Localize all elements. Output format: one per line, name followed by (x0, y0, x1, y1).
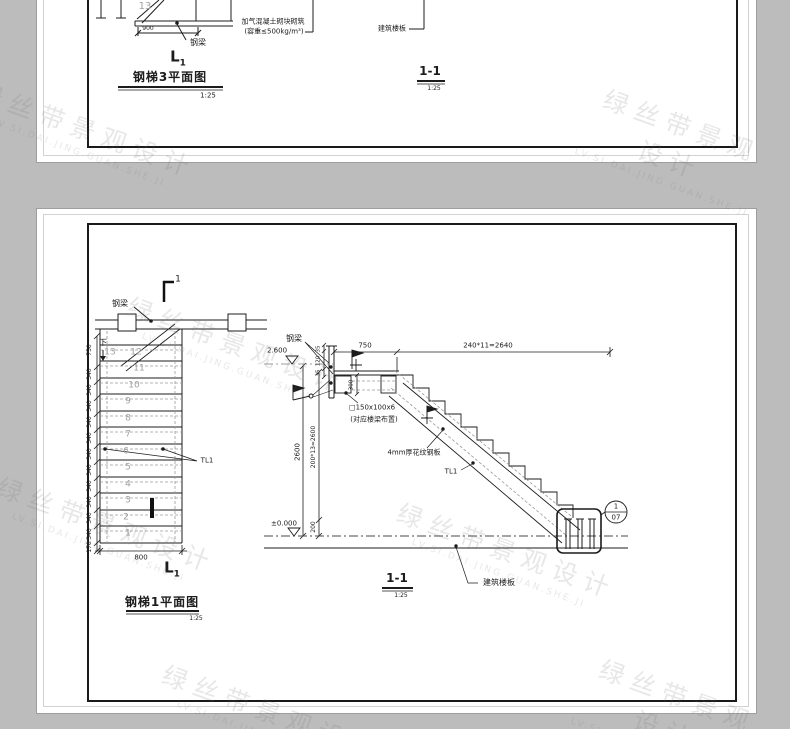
callout-detail-number: 1 (614, 504, 618, 511)
plan-dim-750: 750 (87, 344, 93, 355)
step-number: 6 (123, 448, 129, 457)
level-top: 2.600 (267, 348, 287, 355)
plate-spec: 4mm厚花纹钢板 (387, 450, 440, 457)
plan-dim-340: 340 (87, 400, 93, 411)
top-dim-900: 900 (142, 26, 153, 32)
plan-beam-mark: L1 (164, 561, 180, 580)
step-number: 13 (104, 349, 115, 358)
step-number: 11 (133, 365, 144, 374)
step-number: 9 (125, 398, 131, 407)
level-zero: ±0.000 (271, 521, 297, 528)
masonry-note-line2: (容重≤500kg/m³) (244, 29, 303, 36)
plan-dim-170: 170 (87, 541, 93, 552)
section-beam-label: 钢梁 (286, 335, 302, 343)
plan-dim-340: 340 (87, 368, 93, 379)
dim-risers: 200*13=2600 (311, 426, 317, 468)
plan-dim-340: 340 (87, 528, 93, 539)
callout-sheet-number: 07 (612, 515, 621, 522)
step-number: 2 (123, 514, 129, 523)
masonry-note-line1: 加气混凝土砌块砌筑 (242, 19, 305, 26)
dim-treads: 240*11=2640 (463, 343, 512, 350)
top-beam-mark: L1 (170, 50, 186, 69)
section-title: 1-1 (386, 572, 408, 584)
step-number: 1 (125, 530, 131, 539)
step-number: 4 (125, 481, 131, 490)
top-drawing-scale: 1:25 (200, 93, 216, 100)
dim-a: 35 (316, 346, 322, 353)
plan-scale: 1:25 (189, 616, 202, 622)
dim-b: 120 (316, 356, 322, 367)
plan-dim-340: 340 (87, 416, 93, 427)
plan-dim-340: 340 (87, 464, 93, 475)
section-scale: 1:25 (394, 593, 407, 599)
plan-dim-340: 340 (87, 448, 93, 459)
plan-dim-340: 340 (87, 432, 93, 443)
step-number: 10 (128, 382, 139, 391)
step-number: 5 (125, 464, 131, 473)
tube-spec-line2: (对应楼梁布置) (350, 417, 397, 424)
section-tl1-label: TL1 (445, 469, 458, 476)
linework-svg (0, 0, 790, 729)
plan-dim-340: 340 (87, 480, 93, 491)
step-number: 7 (125, 431, 131, 440)
section-slab-label: 建筑楼板 (483, 579, 515, 587)
step-number: 3 (125, 497, 131, 506)
dim-last-riser: 200 (311, 521, 317, 532)
plan-down-label: 下 (99, 339, 107, 347)
step-number: 12 (130, 349, 141, 358)
dim-landing: 750 (358, 343, 371, 350)
top-section-title: 1-1 (419, 65, 441, 77)
plan-title: 钢梯1平面图 (125, 596, 199, 608)
plan-dim-340: 340 (87, 384, 93, 395)
top-section-scale: 1:25 (427, 86, 440, 92)
plan-dim-340: 340 (87, 512, 93, 523)
step-number: 8 (125, 415, 131, 424)
tube-spec-line1: □150x100x6 (349, 405, 395, 412)
dim-c: 35 (316, 370, 322, 377)
plan-dim-340: 340 (87, 496, 93, 507)
dim-d: 300 (349, 380, 355, 391)
plan-tl1-label: TL1 (201, 458, 214, 465)
plan-dim-800: 800 (134, 555, 147, 562)
slab-note: 建筑楼板 (378, 26, 406, 33)
top-step-number: 13 (139, 2, 152, 12)
cad-drawing-preview: 13 900 钢梁 L1 钢梯3平面图 1:25 加气混凝土砌块砌筑 (容重≤5… (0, 0, 790, 729)
top-beam-label: 钢梁 (190, 39, 206, 47)
top-drawing-title: 钢梯3平面图 (133, 71, 207, 83)
plan-cut-number: 1 (175, 276, 181, 285)
plan-beam-label: 钢梁 (112, 300, 128, 308)
dim-total-height: 2600 (295, 443, 302, 461)
